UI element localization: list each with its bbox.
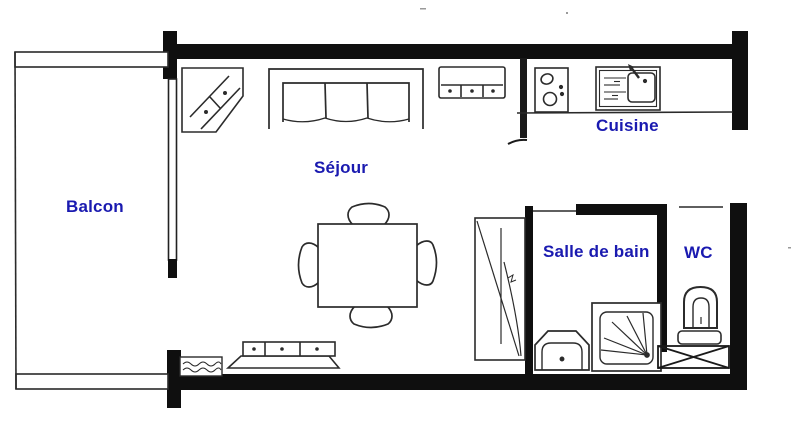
chair-icon [350, 306, 392, 328]
balcony-railing [15, 52, 168, 389]
bottom-wall [168, 374, 747, 390]
room-label-cuisine: Cuisine [596, 117, 659, 135]
sofa-icon [269, 69, 423, 129]
radiator-icon [180, 357, 222, 376]
room-label-sejour: Séjour [314, 159, 368, 177]
room-label-balcon: Balcon [66, 198, 124, 216]
sideboard-icon [228, 342, 339, 368]
chair-icon [416, 241, 437, 285]
room-label-salle-de-bain: Salle de bain [543, 243, 650, 261]
balcony-top-rail [15, 52, 168, 67]
corner-cabinet-icon [182, 68, 243, 132]
right-wall-lower [730, 203, 747, 376]
cooktop-icon [535, 68, 568, 112]
bathroom-left-wall [525, 206, 533, 374]
crossed-fixture-icon [658, 346, 729, 368]
top-wall [166, 44, 748, 59]
chair-icon [299, 243, 320, 287]
wardrobe-icon [475, 218, 525, 360]
room-label-wc: WC [684, 244, 713, 262]
bathroom-top-wall [576, 204, 657, 215]
toilet-icon [678, 287, 721, 344]
floor-plan: Balcon Séjour Cuisine Salle de bain WC [0, 0, 799, 421]
drawer-chest-icon [439, 67, 505, 98]
bottom-left-wall-post [167, 350, 181, 408]
balcony-left-rail [15, 52, 16, 389]
dining-table-icon [299, 204, 437, 328]
balcony-bottom-rail [16, 374, 168, 389]
washbasin-icon [535, 331, 589, 370]
right-wall-upper [732, 31, 748, 130]
shower-icon [592, 303, 661, 371]
kitchen-sink-icon [596, 64, 660, 110]
chair-icon [348, 204, 389, 226]
balcony-window-wall [168, 79, 177, 278]
